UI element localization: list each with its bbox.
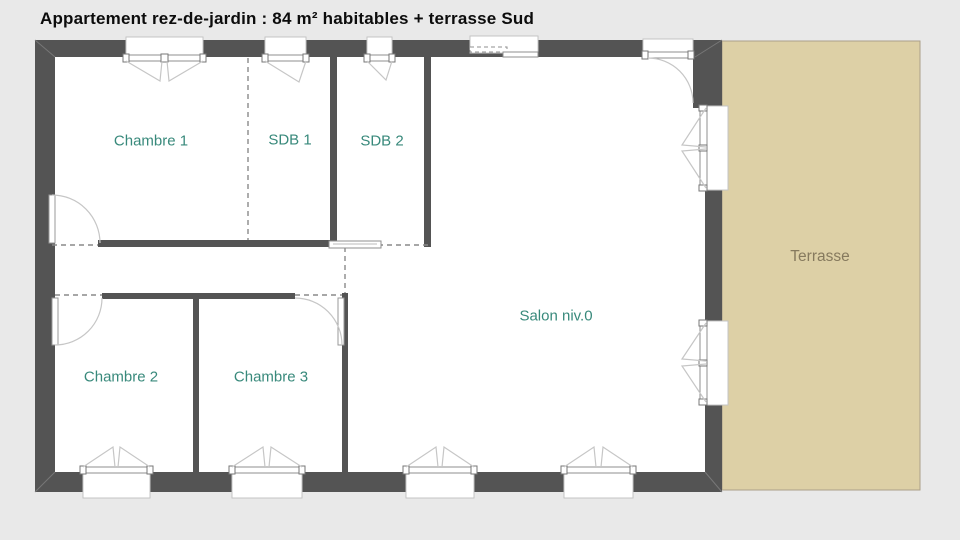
sliding-door-icon <box>329 241 381 248</box>
room-label-sdb-2: SDB 2 <box>360 133 403 150</box>
apartment-floor <box>35 40 722 492</box>
room-label-chambre-3: Chambre 3 <box>234 369 308 386</box>
floor-plan-canvas: Appartement rez-de-jardin : 84 m² habita… <box>0 0 960 540</box>
room-label-terrasse: Terrasse <box>790 248 849 266</box>
floor-plan-drawing <box>0 0 960 540</box>
room-label-chambre-2: Chambre 2 <box>84 369 158 386</box>
room-label-sdb-1: SDB 1 <box>268 132 311 149</box>
room-label-chambre-1: Chambre 1 <box>114 133 188 150</box>
room-label-salon: Salon niv.0 <box>519 308 592 325</box>
